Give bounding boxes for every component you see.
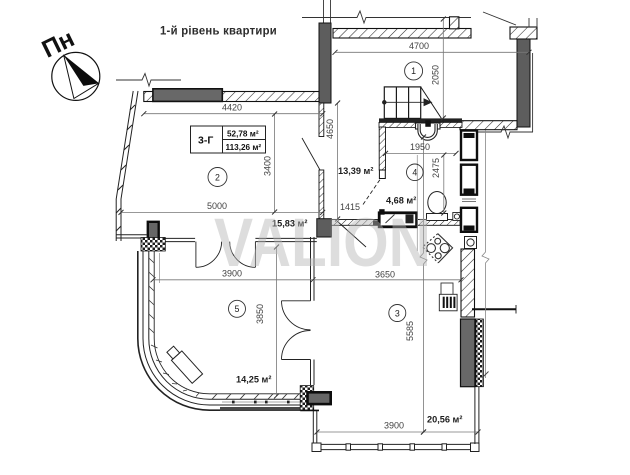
svg-text:4: 4 <box>412 168 417 178</box>
svg-text:3900: 3900 <box>384 421 404 431</box>
svg-text:4700: 4700 <box>409 41 429 51</box>
svg-text:13,39 м²: 13,39 м² <box>338 166 373 176</box>
svg-text:3850: 3850 <box>255 304 265 324</box>
svg-text:VALION: VALION <box>214 204 431 281</box>
svg-text:113,26 м²: 113,26 м² <box>226 143 262 152</box>
svg-text:4650: 4650 <box>325 119 335 139</box>
svg-text:14,25 м²: 14,25 м² <box>236 375 271 385</box>
svg-text:5: 5 <box>235 304 240 314</box>
svg-text:2: 2 <box>215 172 220 182</box>
svg-text:52,78 м²: 52,78 м² <box>227 130 259 139</box>
svg-text:3400: 3400 <box>263 156 273 176</box>
svg-text:5585: 5585 <box>405 321 415 341</box>
svg-text:3-Г: 3-Г <box>198 135 213 147</box>
svg-text:4420: 4420 <box>222 103 242 113</box>
svg-text:1: 1 <box>411 66 416 76</box>
svg-text:1950: 1950 <box>410 142 430 152</box>
svg-text:2475: 2475 <box>431 158 441 178</box>
svg-text:3: 3 <box>395 308 400 318</box>
svg-text:2050: 2050 <box>431 65 441 85</box>
svg-text:1-й рівень квартири: 1-й рівень квартири <box>160 24 277 38</box>
svg-text:20,56 м²: 20,56 м² <box>427 415 462 425</box>
